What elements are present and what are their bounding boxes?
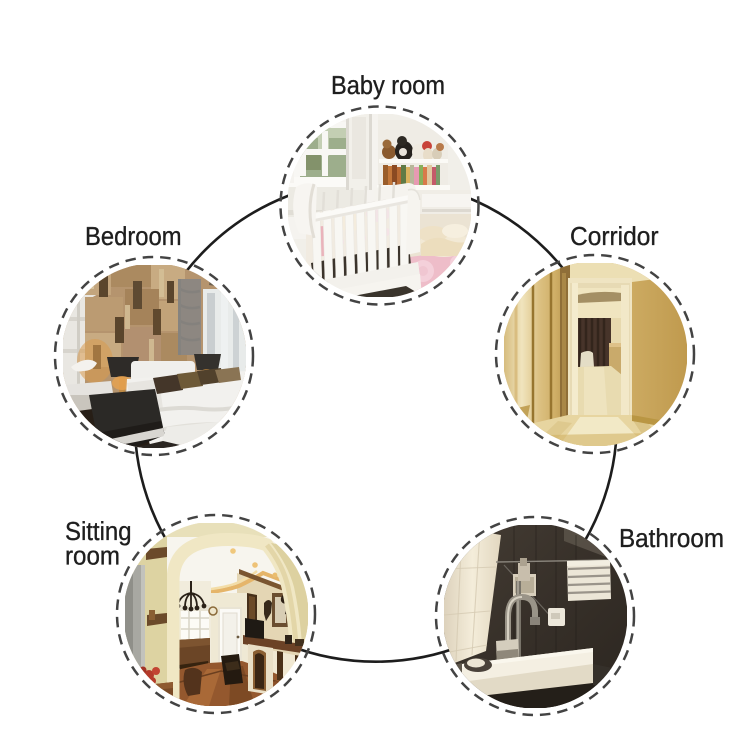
svg-text:Baby room: Baby room — [331, 70, 445, 100]
svg-text:room: room — [65, 541, 120, 571]
svg-text:Corridor: Corridor — [570, 221, 659, 251]
svg-text:Bedroom: Bedroom — [85, 221, 182, 251]
svg-text:Bathroom: Bathroom — [619, 523, 724, 553]
